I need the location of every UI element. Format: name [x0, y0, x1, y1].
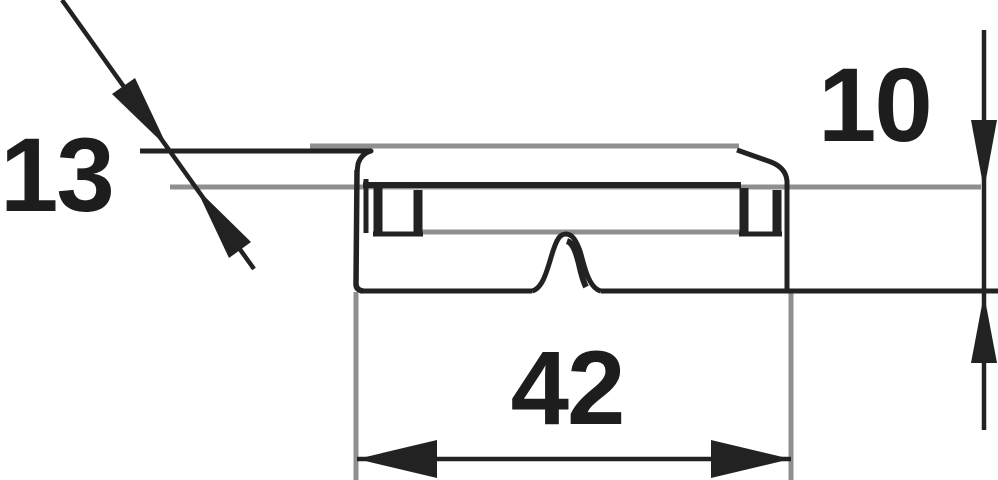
dimension-10-label: 10	[818, 47, 931, 164]
dim-42-arrow-left-icon	[357, 440, 437, 478]
part-outline	[140, 150, 998, 291]
dim-10-arrow-down-icon	[971, 120, 997, 190]
dimension-13-label: 13	[0, 117, 113, 234]
dimension-42-label: 42	[511, 330, 624, 447]
dim-13-arrow-down-icon	[112, 78, 168, 148]
dimension-10: 10	[818, 30, 997, 430]
dimension-42: 42	[357, 330, 791, 478]
dimension-13: 13	[0, 0, 254, 269]
technical-drawing: 13 10 42	[0, 0, 998, 480]
dim-10-arrow-up-icon	[971, 294, 997, 363]
technical-drawing-canvas: 13 10 42	[0, 0, 998, 480]
dim-42-arrow-right-icon	[711, 440, 791, 478]
dim-13-arrow-up-icon	[196, 188, 251, 258]
